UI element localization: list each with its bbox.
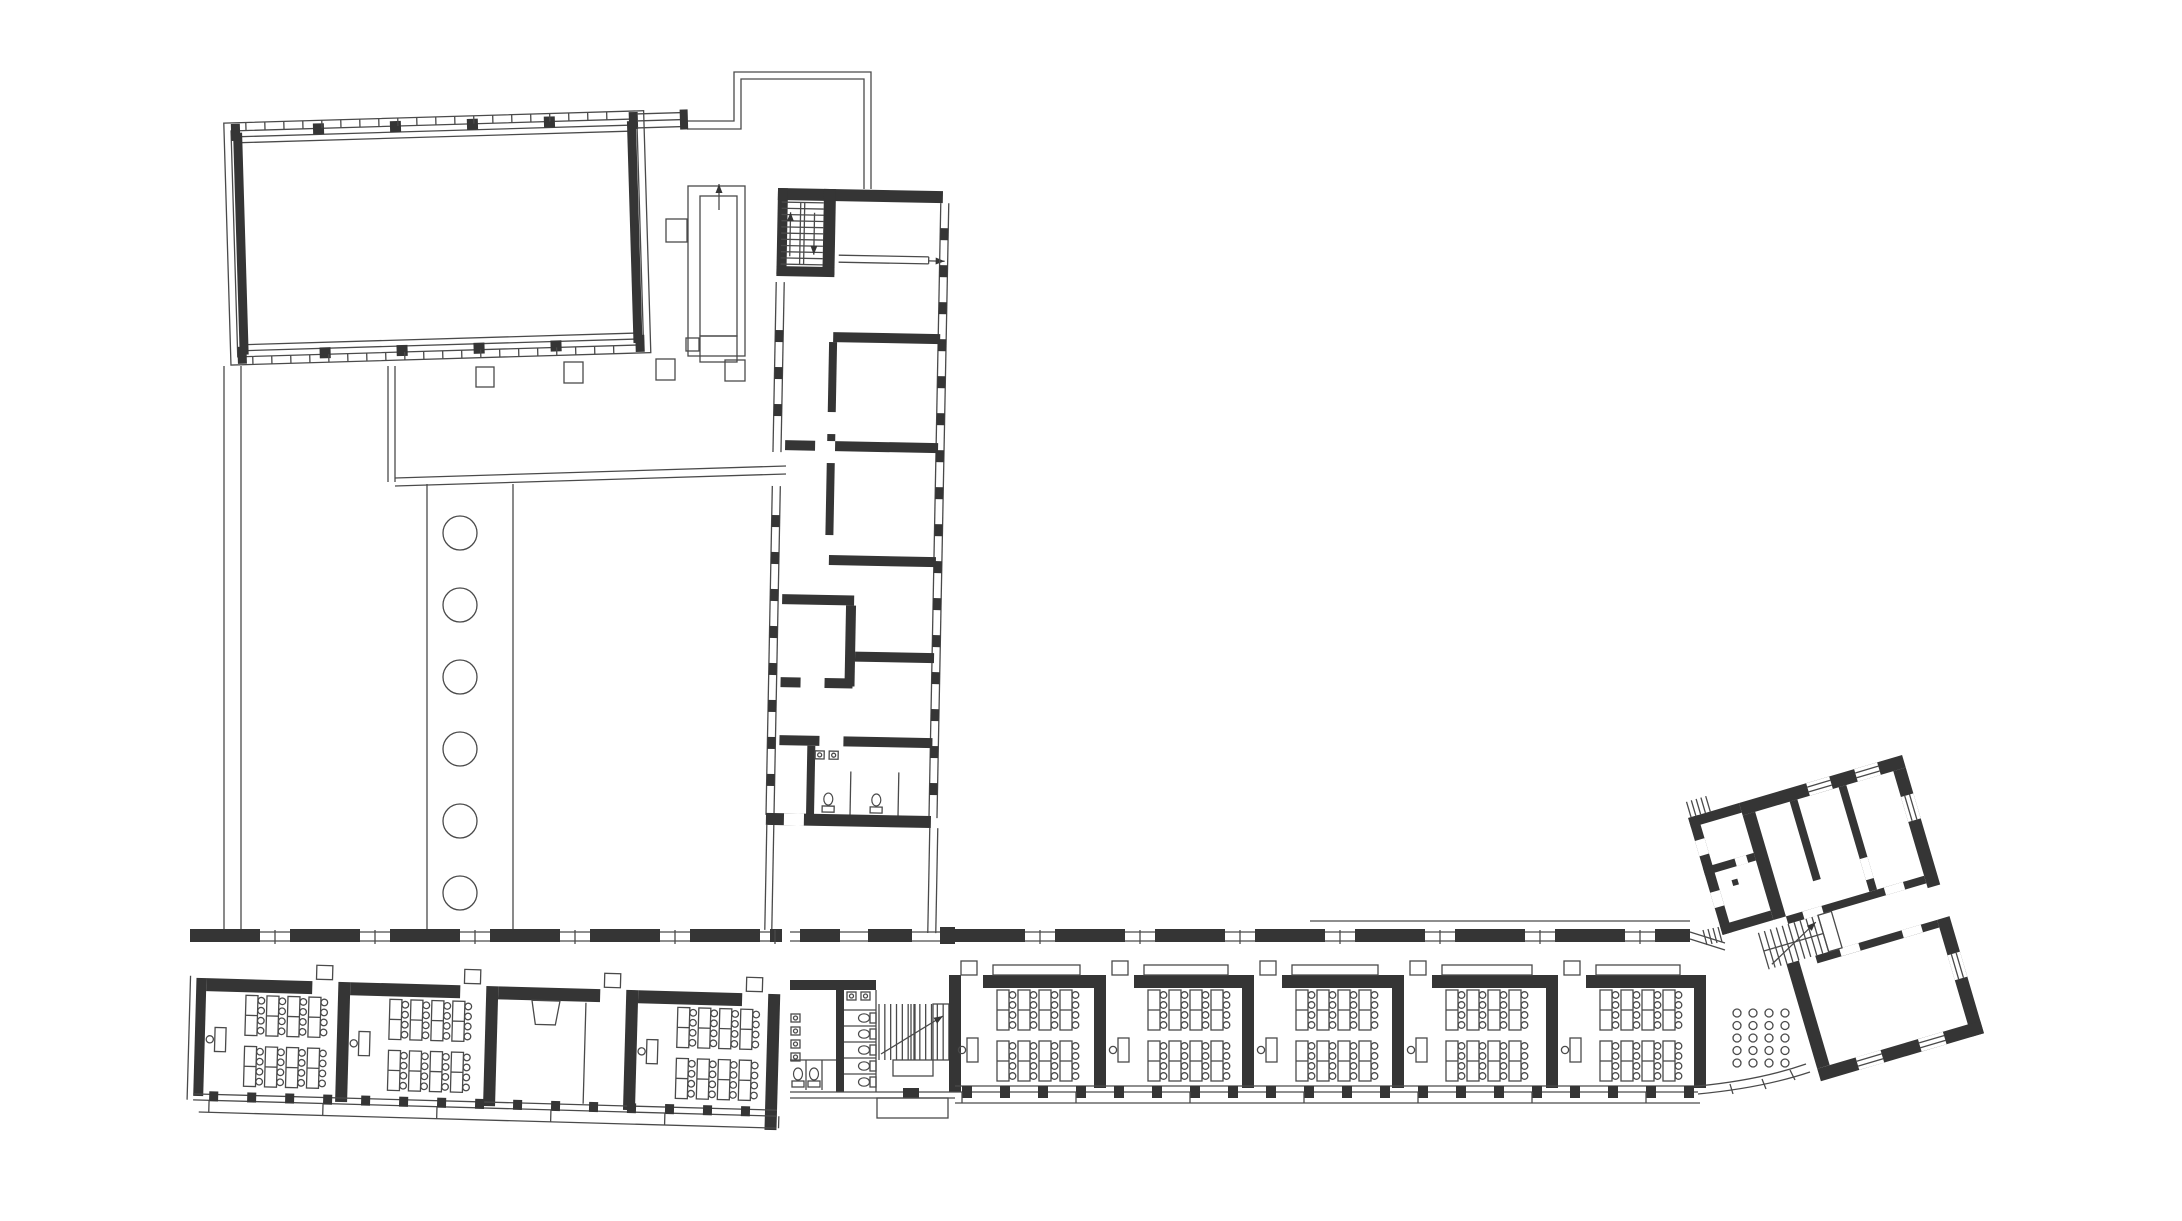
outline	[1902, 925, 1923, 938]
pillar	[1684, 1086, 1694, 1098]
wall	[1790, 799, 1821, 881]
chair	[463, 1084, 470, 1091]
chair	[1675, 1022, 1682, 1029]
wc-bowl	[859, 1014, 870, 1022]
chair	[1181, 1063, 1188, 1070]
chair	[1371, 1012, 1378, 1019]
chair	[1202, 1022, 1209, 1029]
chair	[709, 1091, 716, 1098]
sink-basin	[794, 1029, 798, 1033]
wall	[949, 975, 961, 1092]
plan-line	[242, 333, 639, 345]
pillar	[962, 1086, 972, 1098]
sink-basin	[850, 994, 854, 998]
pillar	[247, 1092, 256, 1102]
classroom-door	[316, 965, 332, 979]
terrace-dots	[1781, 1047, 1789, 1055]
chair	[421, 1053, 428, 1060]
wall	[1743, 812, 1786, 920]
chair	[277, 1069, 284, 1076]
teacher-desk	[1118, 1038, 1129, 1062]
mullion	[473, 343, 484, 354]
chair	[1654, 1053, 1661, 1060]
outline	[1695, 838, 1709, 856]
chair	[1675, 1073, 1682, 1080]
chair	[731, 1041, 738, 1048]
corridor-bench	[1442, 965, 1532, 975]
wall	[775, 330, 783, 342]
chair	[1030, 1002, 1037, 1009]
classroom-front-wall	[1586, 975, 1694, 988]
plan-line	[1708, 929, 1712, 944]
pillar	[1646, 1086, 1656, 1098]
chair	[278, 1018, 285, 1025]
teacher-desk	[967, 1038, 978, 1062]
outline	[1884, 882, 1905, 895]
pillar	[513, 1100, 522, 1110]
terrace-dots	[1749, 1022, 1757, 1030]
chair	[1675, 1002, 1682, 1009]
chair	[1612, 992, 1619, 999]
outline	[1860, 857, 1874, 880]
wall	[772, 515, 780, 527]
plan-line	[236, 125, 633, 137]
site-line	[687, 79, 864, 189]
chair	[277, 1079, 284, 1086]
teacher-chair	[1109, 1046, 1116, 1053]
chair	[442, 1083, 449, 1090]
chair	[1030, 1012, 1037, 1019]
wall	[868, 929, 912, 942]
wall	[590, 929, 660, 942]
classroom-front-wall	[983, 975, 1094, 988]
chair	[443, 1033, 450, 1040]
wall	[290, 929, 360, 942]
chair	[1350, 1022, 1357, 1029]
wc-bowl	[859, 1030, 870, 1038]
pillar	[1608, 1086, 1618, 1098]
chair	[1051, 1022, 1058, 1029]
pillar	[1304, 1086, 1314, 1098]
sports-hall	[224, 109, 695, 365]
chair	[442, 1074, 449, 1081]
wall	[1655, 929, 1690, 942]
wall	[1786, 960, 1829, 1068]
wall	[1055, 929, 1125, 942]
chair	[320, 1029, 327, 1036]
east-classroom-wing	[955, 921, 1706, 1103]
chair	[464, 1023, 471, 1030]
chair	[422, 1022, 429, 1029]
plan-line	[583, 1003, 586, 1104]
chair	[1458, 1073, 1465, 1080]
stair-treads	[782, 214, 824, 215]
chair	[1308, 1012, 1315, 1019]
wc-bowl	[824, 793, 833, 805]
plan-line	[839, 262, 929, 264]
chair	[1350, 1073, 1357, 1080]
chair	[1633, 1053, 1640, 1060]
chair	[1223, 1002, 1230, 1009]
wall	[767, 737, 775, 749]
outline	[231, 119, 644, 357]
sink	[815, 751, 824, 759]
chair	[1479, 1022, 1486, 1029]
sink	[791, 1014, 800, 1022]
stair-treads	[782, 208, 824, 209]
chair	[321, 999, 328, 1006]
chair	[689, 1029, 696, 1036]
sink-basin	[864, 994, 868, 998]
wall	[780, 677, 800, 687]
chair	[464, 1033, 471, 1040]
chair	[711, 1020, 718, 1027]
wc-bowl	[872, 794, 881, 806]
classroom-door	[1112, 961, 1128, 975]
wall	[1355, 929, 1425, 942]
classroom-front-wall	[206, 978, 312, 994]
wall	[770, 929, 782, 942]
pillar	[627, 1103, 636, 1113]
teacher-chair	[1561, 1046, 1568, 1053]
annex-outside-steps	[1687, 802, 1692, 817]
pillar	[1456, 1086, 1466, 1098]
teacher-chair	[638, 1048, 645, 1055]
chair	[256, 1058, 263, 1065]
chair	[299, 1049, 306, 1056]
chair	[751, 1082, 758, 1089]
chair	[1675, 1053, 1682, 1060]
terrace-dots	[1749, 1047, 1757, 1055]
chair	[1458, 1053, 1465, 1060]
pillar	[1532, 1086, 1542, 1098]
chair	[1223, 1053, 1230, 1060]
chair	[709, 1071, 716, 1078]
plan-line	[936, 828, 938, 933]
wall	[824, 678, 852, 689]
chair	[753, 1021, 760, 1028]
wall	[939, 265, 947, 277]
wall	[827, 434, 835, 441]
tree	[443, 876, 477, 910]
chair	[1371, 1002, 1378, 1009]
stair-treads	[781, 258, 823, 259]
stair-treads	[781, 264, 823, 265]
sink-basin	[794, 1042, 798, 1046]
terrace-dots	[1749, 1034, 1757, 1042]
terrace-dots	[1733, 1047, 1741, 1055]
chair	[277, 1059, 284, 1066]
wall	[1455, 929, 1525, 942]
wc-tank	[870, 1061, 876, 1071]
chair	[709, 1061, 716, 1068]
plan-line	[766, 486, 772, 815]
chair	[1051, 1043, 1058, 1050]
plan-line	[236, 131, 633, 143]
wall	[785, 440, 815, 451]
plan-line	[1713, 928, 1717, 943]
pillar	[475, 1099, 484, 1109]
wall	[903, 1088, 919, 1098]
chair	[1500, 1073, 1507, 1080]
chair	[1521, 1073, 1528, 1080]
chair	[400, 1072, 407, 1079]
site-line	[687, 72, 871, 189]
chair	[443, 1023, 450, 1030]
stair-treads	[781, 239, 823, 240]
north-wing	[764, 188, 950, 933]
chair	[1371, 1022, 1378, 1029]
chair	[463, 1074, 470, 1081]
chair	[1479, 1053, 1486, 1060]
stair-down-arrow	[810, 246, 817, 255]
chair	[1009, 1053, 1016, 1060]
chair	[1371, 1043, 1378, 1050]
chair	[1181, 1022, 1188, 1029]
outline	[531, 1000, 560, 1025]
chair	[1500, 1053, 1507, 1060]
wall	[193, 978, 206, 1096]
pillar	[323, 1094, 332, 1104]
outline	[933, 1004, 949, 1060]
wall	[933, 598, 941, 610]
pillar	[285, 1093, 294, 1103]
chair	[400, 1062, 407, 1069]
plan-line	[1730, 1084, 1733, 1094]
corridor-bench	[993, 965, 1080, 975]
wall	[835, 441, 938, 453]
wall	[1546, 975, 1558, 1088]
wc-tank	[822, 806, 834, 812]
chair	[320, 1019, 327, 1026]
wall	[782, 594, 854, 605]
wall	[932, 635, 940, 647]
chair	[688, 1090, 695, 1097]
chair	[1160, 1022, 1167, 1029]
annex-outside-steps	[1701, 798, 1706, 813]
chair	[1612, 1012, 1619, 1019]
teacher-chair	[206, 1036, 213, 1043]
chair	[321, 1009, 328, 1016]
chair	[1371, 992, 1378, 999]
chair	[423, 1012, 430, 1019]
chair	[690, 1019, 697, 1026]
chair	[1308, 1043, 1315, 1050]
chair	[752, 1031, 759, 1038]
outline	[666, 219, 687, 242]
wall	[768, 700, 776, 712]
chair	[1051, 1063, 1058, 1070]
wall	[1242, 975, 1254, 1088]
sink-basin	[794, 1055, 798, 1059]
stair-treads	[781, 252, 823, 253]
chair	[1329, 1012, 1336, 1019]
stair-direction-arrow	[933, 1016, 943, 1024]
chair	[299, 1018, 306, 1025]
chair	[1675, 1043, 1682, 1050]
sink	[829, 751, 838, 759]
tree	[443, 660, 477, 694]
chair	[1675, 1012, 1682, 1019]
terrace-dots	[1733, 1022, 1741, 1030]
chair	[1458, 1022, 1465, 1029]
annex-building	[1684, 740, 1984, 1097]
plan-line	[800, 202, 801, 264]
terrace-dots	[1765, 1059, 1773, 1067]
pillar	[437, 1098, 446, 1108]
wall	[828, 342, 837, 412]
chair	[1521, 1063, 1528, 1070]
chair	[465, 1013, 472, 1020]
chair	[298, 1079, 305, 1086]
wc-tank	[870, 1013, 876, 1023]
wall	[843, 736, 932, 748]
chair	[1181, 1002, 1188, 1009]
chair	[1160, 1002, 1167, 1009]
outline	[700, 196, 737, 336]
chair	[1009, 1002, 1016, 1009]
wall	[806, 746, 815, 822]
wall	[335, 982, 350, 1102]
chair	[1654, 1012, 1661, 1019]
chair	[1654, 1073, 1661, 1080]
plan-line	[199, 1112, 777, 1128]
chair	[751, 1072, 758, 1079]
wall	[1732, 879, 1739, 886]
chair	[1030, 1022, 1037, 1029]
chair	[711, 1010, 718, 1017]
teacher-desk	[1266, 1038, 1277, 1062]
teacher-chair	[1407, 1046, 1414, 1053]
classroom-door	[1410, 961, 1426, 975]
chair	[1633, 1043, 1640, 1050]
chair	[1479, 992, 1486, 999]
corridor-bench	[1144, 965, 1228, 975]
annex-outside-steps	[1691, 800, 1696, 815]
plan-line	[804, 203, 805, 265]
chair	[1223, 1022, 1230, 1029]
classroom-door	[746, 977, 762, 991]
teacher-desk	[358, 1031, 370, 1055]
chair	[1500, 1063, 1507, 1070]
chair	[421, 1073, 428, 1080]
classroom-door	[961, 961, 977, 975]
corridor-bench	[1292, 965, 1378, 975]
chair	[401, 1031, 408, 1038]
wall	[934, 524, 942, 536]
plan-line	[765, 825, 767, 930]
chair	[1009, 1073, 1016, 1080]
chair	[1308, 1053, 1315, 1060]
stair-treads	[781, 233, 823, 234]
chair	[752, 1041, 759, 1048]
plan-line	[243, 339, 640, 351]
terrace-dots	[1765, 1022, 1773, 1030]
teacher-desk	[646, 1040, 658, 1064]
chair	[1458, 1012, 1465, 1019]
chair	[730, 1062, 737, 1069]
west-classroom-wing	[187, 962, 783, 1130]
wc-tank	[870, 1045, 876, 1055]
wc-tank	[808, 1081, 820, 1087]
chair	[1500, 1012, 1507, 1019]
wall	[829, 555, 936, 567]
classroom-front-wall	[1432, 975, 1546, 988]
chair	[731, 1031, 738, 1038]
chair	[732, 1011, 739, 1018]
chair	[1072, 1022, 1079, 1029]
wall	[774, 367, 782, 379]
chair	[1521, 1012, 1528, 1019]
wall	[690, 929, 760, 942]
wall	[1155, 929, 1225, 942]
chair	[1329, 1043, 1336, 1050]
chair	[1030, 1063, 1037, 1070]
chair	[1030, 1073, 1037, 1080]
chair	[1160, 1073, 1167, 1080]
sink-basin	[794, 1016, 798, 1020]
chair	[753, 1011, 760, 1018]
wall	[1817, 1021, 1984, 1081]
stair-treads	[781, 227, 823, 228]
chair	[1350, 1053, 1357, 1060]
chair	[1308, 1002, 1315, 1009]
chair	[1072, 1073, 1079, 1080]
chair	[1612, 1022, 1619, 1029]
chair	[319, 1080, 326, 1087]
chair	[442, 1064, 449, 1071]
tree	[443, 732, 477, 766]
chair	[402, 1011, 409, 1018]
chair	[710, 1030, 717, 1037]
ramp	[686, 184, 745, 362]
chair	[1329, 1022, 1336, 1029]
wall	[390, 929, 460, 942]
chair	[730, 1092, 737, 1099]
chair	[463, 1054, 470, 1061]
tree	[443, 516, 477, 550]
entrance-lobby	[877, 1098, 948, 1118]
pillar	[741, 1106, 750, 1116]
wall	[931, 709, 939, 721]
wall	[833, 332, 940, 344]
chair	[1633, 1012, 1640, 1019]
pillar	[1114, 1086, 1124, 1098]
chair	[1521, 1053, 1528, 1060]
hall-west-wall	[233, 133, 249, 355]
wall	[1694, 975, 1706, 1088]
wall	[836, 980, 844, 1092]
chair	[688, 1070, 695, 1077]
pillar	[551, 1101, 560, 1111]
chair	[1072, 1053, 1079, 1060]
wc-bowl	[859, 1046, 870, 1054]
chair	[279, 998, 286, 1005]
chair	[257, 1027, 264, 1034]
chair	[730, 1082, 737, 1089]
chair	[1350, 992, 1357, 999]
pillar	[589, 1102, 598, 1112]
tree	[443, 588, 477, 622]
chair	[1030, 992, 1037, 999]
chair	[688, 1060, 695, 1067]
pillar	[1000, 1086, 1010, 1098]
chair	[1612, 1002, 1619, 1009]
chair	[1500, 992, 1507, 999]
chair	[1500, 1002, 1507, 1009]
wall	[680, 109, 689, 129]
outline	[1818, 911, 1842, 951]
